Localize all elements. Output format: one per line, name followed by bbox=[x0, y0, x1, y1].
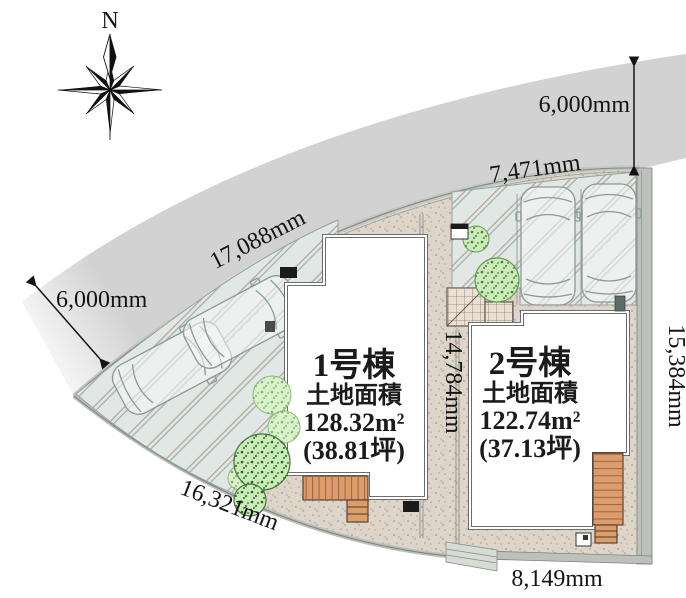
dim-label-east: 15,384mm bbox=[663, 324, 686, 428]
compass-needle-white bbox=[104, 34, 111, 79]
building-2-area-tsubo: (37.13坪) bbox=[479, 434, 581, 463]
compass-needle-black bbox=[110, 34, 117, 79]
building-2-area-title: 土地面積 bbox=[482, 380, 578, 407]
dim-center-boundary: 14,784mm bbox=[440, 330, 466, 434]
dim-label-road-left: 6,000mm bbox=[56, 287, 148, 313]
ac-unit bbox=[403, 501, 419, 512]
car-outline-4 bbox=[577, 184, 641, 302]
utility-pole-box bbox=[615, 296, 625, 311]
dim-label-center: 14,784mm bbox=[440, 330, 466, 434]
dim-label-road-right: 6,000mm bbox=[539, 92, 631, 118]
building-2-area-sqm: 122.74m² bbox=[480, 406, 581, 435]
building-1-area-title: 土地面積 bbox=[306, 382, 402, 409]
site-plan: 1号棟 土地面積 128.32m² (38.81坪) 2号棟 土地面積 122.… bbox=[0, 0, 686, 598]
utility-box-small bbox=[265, 321, 275, 332]
meter-box-2 bbox=[576, 533, 591, 546]
tree bbox=[253, 376, 291, 414]
compass-north-label: N bbox=[101, 8, 118, 34]
dim-east-boundary: 15,384mm bbox=[663, 324, 686, 428]
compass-rose: N bbox=[58, 8, 162, 140]
building-2-name: 2号棟 bbox=[489, 345, 573, 382]
tree-dense bbox=[234, 434, 290, 490]
utility-box bbox=[280, 267, 297, 278]
building-1-area-tsubo: (38.81坪) bbox=[303, 436, 405, 465]
site-plan-svg: 1号棟 土地面積 128.32m² (38.81坪) 2号棟 土地面積 122.… bbox=[0, 0, 686, 598]
building-1-name: 1号棟 bbox=[313, 347, 397, 384]
dim-label-south: 8,149mm bbox=[511, 566, 603, 592]
dim-south-boundary: 8,149mm bbox=[511, 566, 603, 592]
east-wall bbox=[637, 168, 652, 564]
car-outline-3 bbox=[516, 187, 580, 305]
building-1-area-sqm: 128.32m² bbox=[304, 408, 405, 437]
meter-box-1 bbox=[451, 224, 468, 239]
tree bbox=[475, 258, 519, 302]
